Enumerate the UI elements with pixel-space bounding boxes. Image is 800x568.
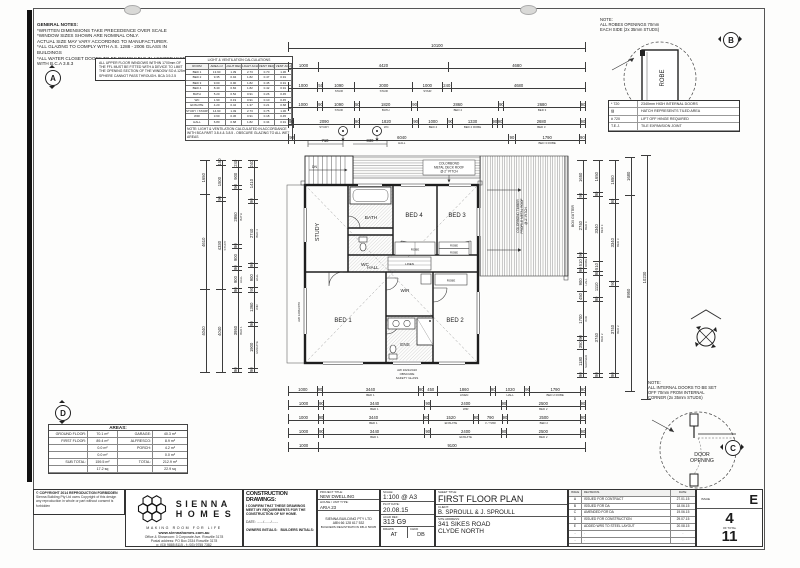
dim-830: 830 (367, 138, 375, 143)
revision-row: BISSUED FOR DA18.06.15 (569, 504, 695, 511)
sheet-number: 4 (725, 512, 733, 526)
marker-b: B (723, 32, 737, 46)
house-type-value: ARIA 23 (318, 505, 379, 510)
revision-row: -.. (569, 538, 695, 545)
svg-text:@ 2° PITCH: @ 2° PITCH (440, 170, 458, 174)
revisions-header: REVISIONS. (582, 490, 671, 496)
issue-box: ISSUE E 4 OF TOTAL 11 (696, 489, 763, 547)
revision-row: CAMENDED FOR DA19.06.15 (569, 510, 695, 517)
roof-deck-band: COLORBOND METAL DECK ROOF @ 2° PITCH (353, 156, 480, 182)
robe-detail-label: ROBE (660, 69, 666, 86)
marker-d-letter: D (55, 405, 71, 421)
project-title-value: NEW DWELLING (318, 494, 379, 499)
marker-a: A (45, 70, 59, 84)
mini-dims: 710 830 (308, 127, 387, 148)
construction-title: CONSTRUCTION DRAWINGS: (244, 490, 316, 503)
vent-table-body: BED 113.901.39 2.730.701.36 BED 29.350.9… (186, 70, 292, 126)
note-c: NOTE:ALL INTERNAL DOORS TO BE SETOFF 70m… (648, 380, 758, 400)
areas-row: SUB TOTAL:159.5 m² TOTAL:212.9 m² (49, 459, 187, 466)
dim-row-top: 1000501090STAIR2000STAIR1000STAIR2404680 (288, 82, 586, 92)
room-label-hall: HALL (367, 265, 379, 270)
sheet-title: FIRST FLOOR PLAN (436, 494, 567, 504)
scale-value: 1:100 @ A3 (381, 494, 434, 501)
ensuite-pan (390, 345, 396, 353)
wir-unit (421, 274, 431, 284)
downpipe (564, 276, 568, 280)
dim-row-top: 1000901090STAIR501820BATH902860BED 49026… (288, 101, 586, 111)
dim-710: 710 (322, 138, 330, 143)
note-b-line: EACH SIDE (2x 35mm STUDS) (600, 27, 710, 32)
room-label-bath: BATH (365, 215, 378, 221)
logo-name-2: HOMES (176, 509, 237, 519)
checked-value: DB (408, 532, 434, 538)
revision-row: EADDED WRS TO STEEL LAYOUT20.08.15 (569, 524, 695, 531)
areas-row: 0.0 m² PORCH:4.2 m² (49, 445, 187, 452)
alfresco-roof: COLORBOND TIMBER PROFILE METAL ROOF @ 2°… (480, 156, 575, 276)
punch-hole (520, 5, 537, 15)
svg-text:ROBE: ROBE (447, 279, 456, 283)
svg-text:ROBE: ROBE (450, 251, 458, 255)
dim-row-bottom: 1000903440BED 1902400ENSUITE902500BED 29… (288, 428, 586, 438)
revision-row: DISSUED FOR CONSTRUCTION29.07.15 (569, 517, 695, 524)
box-gutter-label: BOX GUTTER (571, 204, 575, 227)
room-label-bed3: BED 3 (448, 213, 466, 219)
areas-row: 17.2 sq 22.9 sq (49, 466, 187, 473)
vent-table-title: LIGHT & VENTILATION CALCULATIONS (186, 57, 292, 64)
room-label-linen: LINEN (405, 262, 414, 266)
acad-ref-value: 313 G9 (381, 519, 434, 526)
sheet-info-box: SHEET TITLE: FIRST FLOOR PLAN CLIENT: B.… (435, 489, 568, 547)
copyright-text: Sienna Building Pty Ltd owns Copyright o… (34, 495, 124, 508)
revisions-date-header: DATE: (671, 490, 695, 496)
marker-d: D (55, 405, 69, 419)
logo-name-1: SIENNA (176, 499, 237, 509)
areas-row: 0.0 m² 0.0 m² (49, 452, 187, 459)
stair-dn-label: DN (312, 165, 317, 169)
builders-initials-label: BUILDERS INITIALS: (280, 528, 314, 532)
dim-row-top: 100044204680 (288, 62, 586, 72)
logo-phone: p: (03) 9885 8115 - f: (03) 9755 7382 (126, 543, 242, 547)
marker-b-letter: B (723, 32, 739, 48)
revisions-issue-header: ISSUE (569, 490, 582, 496)
eave-strip (287, 185, 305, 363)
issue-value: E (749, 492, 758, 507)
dim-row-bottom: 10009100 (288, 442, 586, 452)
room-label-bed2: BED 2 (446, 318, 464, 324)
sheet-total: 11 (722, 530, 738, 544)
areas-row: GROUND FLOOR:70.1 m² GARAGE:40.3 m² (49, 431, 187, 438)
legend-row: * 7202340mm HIGH INTERNAL DOORS (609, 101, 739, 108)
dim-col-left: 404046101650 (200, 160, 210, 373)
room-label-wir: WIR (401, 288, 411, 293)
note-b: NOTE:ALL ROBES OPENINGS 70mmEACH SIDE (2… (600, 17, 710, 32)
sienna-hex-logo-icon (132, 493, 172, 525)
plot-date-value: 20.08.15 (381, 507, 434, 514)
revisions-box: ISSUE REVISIONS. DATE: AISSUED FOR CONTR… (568, 489, 696, 547)
room-label-ens: ENS (400, 342, 409, 347)
svg-text:OPENING: OPENING (690, 458, 714, 464)
window-label-left: AW 1206/2070 (297, 302, 301, 322)
revision-row: AISSUED FOR CONTRACT27.01.15 (569, 497, 695, 504)
punch-hole (124, 5, 141, 15)
svg-text:SAFETY GLASS: SAFETY GLASS (396, 376, 418, 380)
ensuite-cistern (389, 354, 397, 359)
stair: DN (305, 156, 353, 185)
room-label-study: STUDY (315, 222, 321, 241)
marker-a-letter: A (45, 70, 61, 86)
issue-label: ISSUE (701, 497, 710, 501)
project-box: PROJECT TITLE: NEW DWELLING HOUSE / UNIT… (317, 489, 380, 547)
site-address-1: 341 SIKES ROAD (436, 521, 567, 528)
dim-row-bottom: 1000903440BED 1902400WIR902500BED 290 (288, 400, 586, 410)
drawing-sheet: GENERAL NOTES: *WRITTEN DIMENSIONS TAKE … (0, 0, 800, 568)
room-label-bed1: BED 1 (334, 318, 352, 324)
ensuite-vanity (388, 318, 415, 329)
scan-edge-artifact (27, 10, 32, 482)
wc-cistern (359, 237, 367, 242)
dim-row-top: 10100 (288, 42, 586, 52)
dim-row-bottom: 1000903440BED 1901520ENSUITE90790V / TWR… (288, 414, 586, 424)
floor-plan: 710 830 COLORBOND METAL DECK ROOF @ 2° P… (225, 120, 645, 390)
construction-statement: I CONFIRM THAT THESE DRAWINGS MEET MY RE… (244, 503, 316, 518)
svg-text:@ 2° PITCH: @ 2° PITCH (524, 206, 528, 224)
revision-row: -.. (569, 531, 695, 538)
builder-registration: BUILDERS REGISTRATION DB-U 50635 (318, 525, 379, 529)
areas-table: AREAS: GROUND FLOOR:70.1 m² GARAGE:40.3 … (48, 424, 188, 474)
marker-c: C (725, 440, 739, 454)
copyright-box: © COPYRIGHT 2014 REPRODUCTION FORBIDDEN … (33, 489, 125, 515)
room-label-bed4: BED 4 (405, 213, 423, 219)
meta-box: SCALE: 1:100 @ A3 PLOT DATE: 20.08.15 AC… (380, 489, 435, 547)
site-address-2: CLYDE NORTH (436, 528, 567, 535)
owners-initials-label: OWNERS INITIALS: (246, 528, 277, 532)
areas-row: FIRST FLOOR:89.4 m² ALFRESCO:8.9 m² (49, 438, 187, 445)
wc-pan (360, 243, 366, 251)
logo-box: SIENNA HOMES MAKING ROOM FOR LIFE www.si… (125, 489, 243, 547)
svg-text:ROBE: ROBE (411, 248, 420, 252)
client-value: B. SPROULL & J. SPROULL (436, 510, 567, 516)
svg-text:ROBE: ROBE (450, 244, 458, 248)
north-point-icon (683, 305, 729, 355)
drawn-value: AT (381, 532, 407, 538)
legend-row: ▨HATCH REPRESENTS TILED AREA (609, 108, 739, 115)
construction-drawings-box: CONSTRUCTION DRAWINGS: I CONFIRM THAT TH… (243, 489, 317, 547)
marker-c-letter: C (725, 440, 741, 456)
